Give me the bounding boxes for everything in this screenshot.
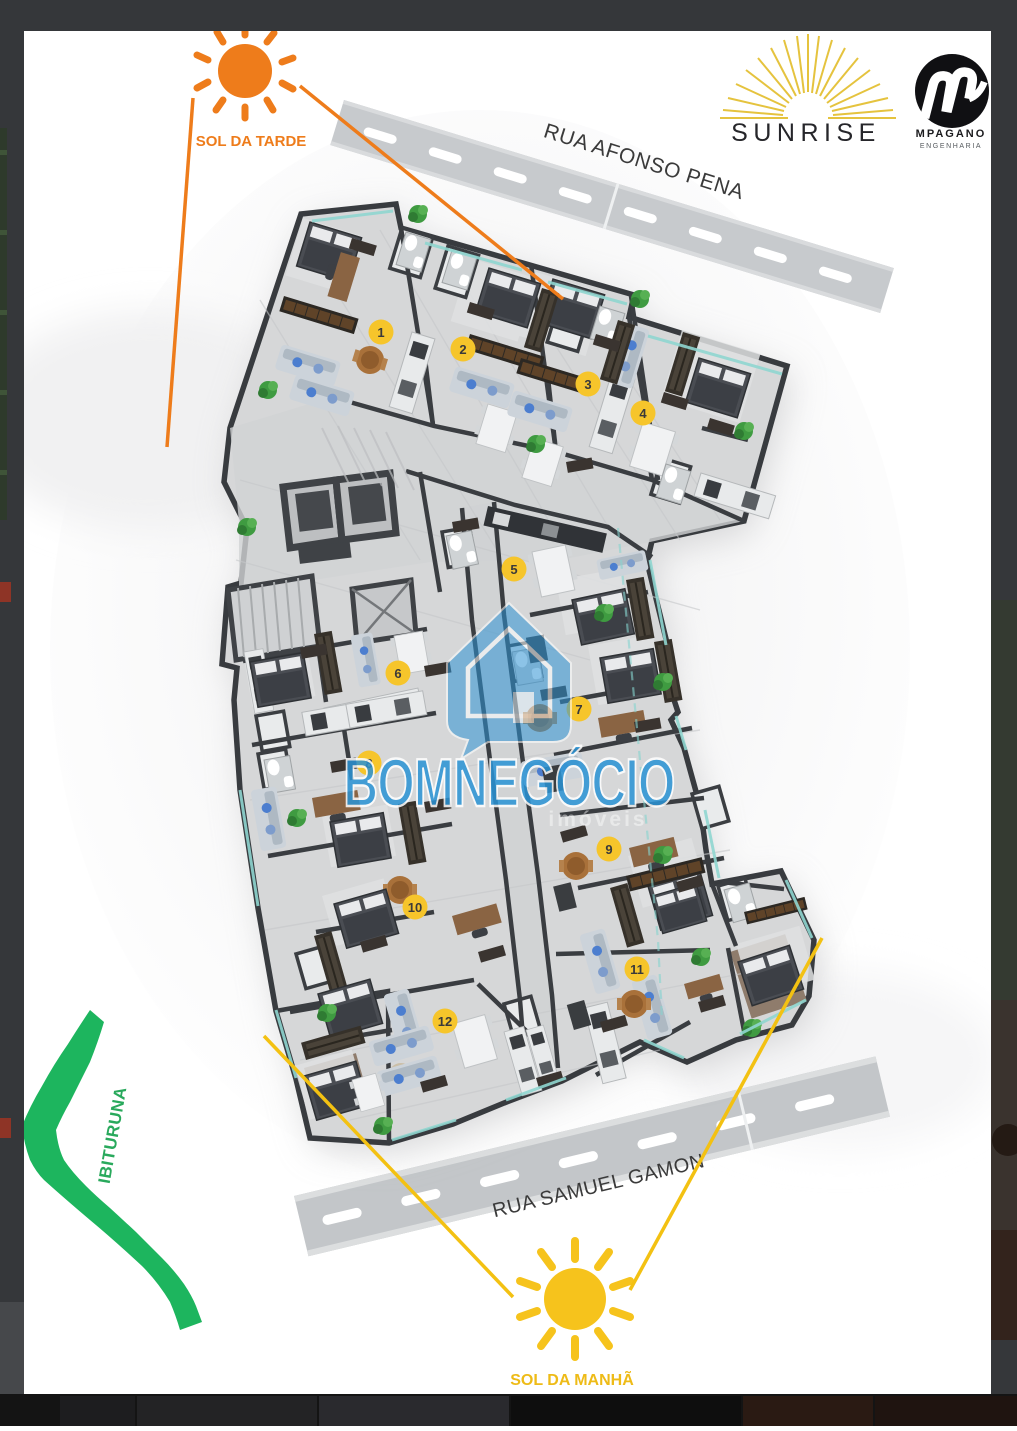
svg-text:9: 9 xyxy=(605,842,612,857)
svg-text:ENGENHARIA: ENGENHARIA xyxy=(920,143,982,150)
svg-text:SOL DA TARDE: SOL DA TARDE xyxy=(196,133,307,150)
svg-text:7: 7 xyxy=(575,702,582,717)
svg-text:5: 5 xyxy=(510,562,517,577)
svg-text:imóveis: imóveis xyxy=(548,808,647,831)
svg-text:SOL DA MANHÃ: SOL DA MANHÃ xyxy=(510,1369,634,1389)
svg-text:6: 6 xyxy=(394,666,401,681)
svg-text:2: 2 xyxy=(459,342,466,357)
svg-text:12: 12 xyxy=(438,1014,452,1029)
svg-text:10: 10 xyxy=(408,900,422,915)
svg-text:MPAGANO: MPAGANO xyxy=(916,128,987,140)
svg-text:4: 4 xyxy=(639,406,647,421)
svg-text:SUNRISE: SUNRISE xyxy=(731,119,881,147)
svg-text:11: 11 xyxy=(630,962,644,977)
svg-text:3: 3 xyxy=(584,377,591,392)
svg-text:1: 1 xyxy=(377,325,384,340)
